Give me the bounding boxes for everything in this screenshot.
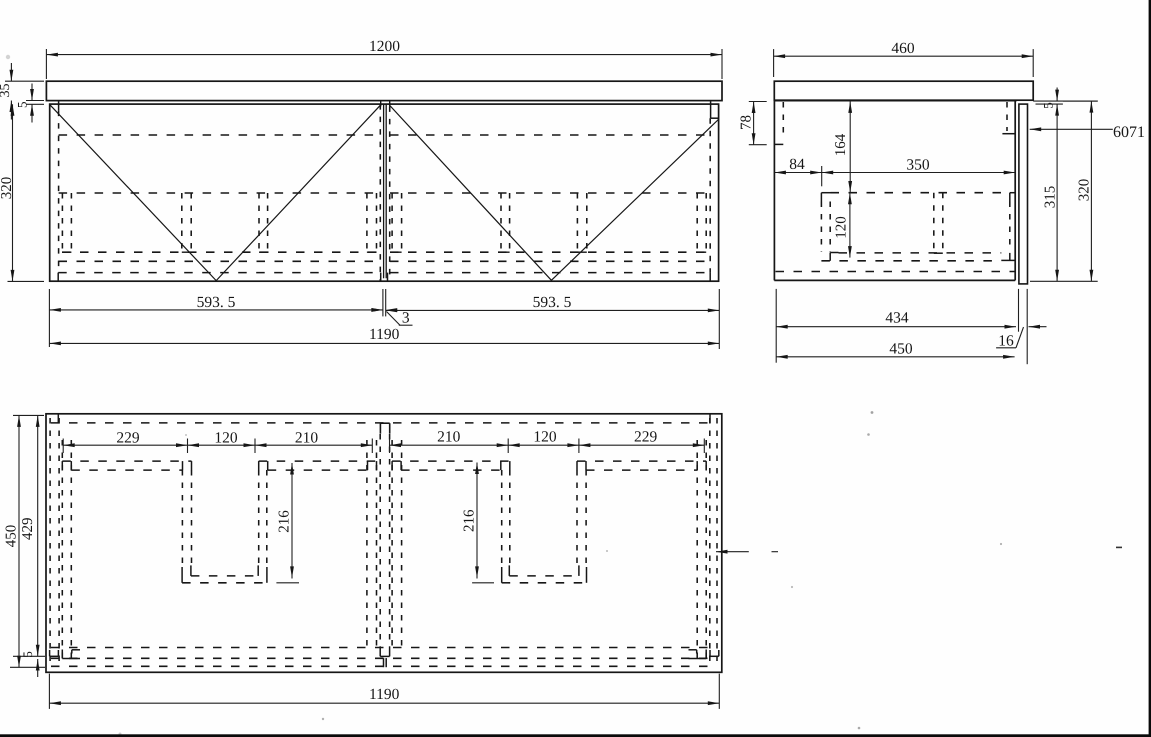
- svg-text:210: 210: [295, 429, 319, 446]
- svg-text:210: 210: [437, 429, 461, 446]
- svg-text:164: 164: [833, 133, 849, 156]
- svg-text:593. 5: 593. 5: [197, 294, 236, 311]
- svg-text:5: 5: [14, 102, 29, 109]
- svg-text:5: 5: [1040, 102, 1055, 109]
- svg-text:320: 320: [0, 177, 15, 200]
- svg-text:1190: 1190: [369, 686, 400, 703]
- svg-text:1200: 1200: [369, 38, 400, 55]
- svg-text:229: 229: [116, 429, 140, 446]
- svg-text:120: 120: [834, 216, 850, 239]
- svg-text:5: 5: [20, 651, 35, 658]
- svg-text:450: 450: [889, 340, 913, 357]
- svg-text:315: 315: [1043, 186, 1059, 209]
- svg-text:6071: 6071: [1113, 124, 1145, 141]
- svg-text:450: 450: [4, 525, 20, 548]
- svg-text:1190: 1190: [369, 326, 400, 343]
- svg-text:229: 229: [634, 429, 658, 446]
- svg-text:460: 460: [891, 40, 915, 57]
- svg-text:78: 78: [739, 115, 755, 130]
- svg-text:429: 429: [20, 517, 36, 540]
- svg-text:120: 120: [214, 429, 238, 446]
- svg-text:216: 216: [277, 510, 293, 533]
- svg-text:434: 434: [885, 310, 909, 327]
- svg-text:350: 350: [906, 157, 930, 174]
- svg-text:120: 120: [533, 429, 557, 446]
- svg-text:3: 3: [402, 310, 410, 327]
- svg-text:35: 35: [0, 84, 13, 98]
- svg-text:216: 216: [461, 509, 477, 532]
- svg-text:84: 84: [789, 156, 805, 173]
- svg-text:320: 320: [1077, 179, 1093, 202]
- svg-text:16: 16: [998, 332, 1014, 349]
- svg-text:593. 5: 593. 5: [533, 294, 572, 311]
